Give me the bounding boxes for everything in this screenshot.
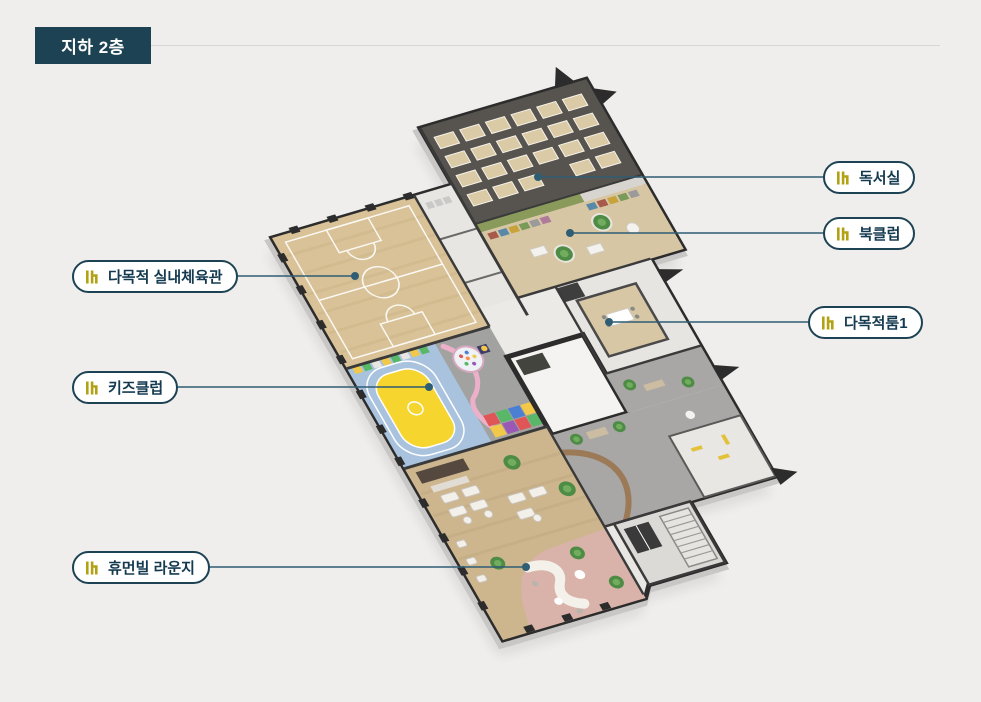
callout-humanville-lounge[interactable]: 휴먼빌 라운지 <box>72 551 210 584</box>
callout-multipurpose-room-1[interactable]: 다목적룸1 <box>808 306 923 339</box>
callout-label: 키즈클럽 <box>108 377 163 398</box>
callout-book-club[interactable]: 북클럽 <box>823 217 915 250</box>
callout-multipurpose-gym[interactable]: 다목적 실내체육관 <box>72 260 238 293</box>
floor-plan-render <box>0 0 981 702</box>
floor-guide-page: { "header": { "floor_badge": "지하 2층", "b… <box>0 0 981 702</box>
callout-kids-club[interactable]: 키즈클럽 <box>72 371 178 404</box>
callout-label: 독서실 <box>859 167 900 188</box>
humanville-logo-icon <box>836 226 852 242</box>
header-divider <box>151 45 940 46</box>
humanville-logo-icon <box>85 380 101 396</box>
humanville-logo-icon <box>85 560 101 576</box>
floor-level-badge: 지하 2층 <box>35 27 151 64</box>
callout-label: 다목적 실내체육관 <box>108 266 223 287</box>
callout-label: 휴먼빌 라운지 <box>108 557 195 578</box>
callout-reading-room[interactable]: 독서실 <box>823 161 915 194</box>
humanville-logo-icon <box>85 269 101 285</box>
callout-label: 북클럽 <box>859 223 900 244</box>
callout-label: 다목적룸1 <box>844 312 908 333</box>
humanville-logo-icon <box>836 170 852 186</box>
humanville-logo-icon <box>821 315 837 331</box>
